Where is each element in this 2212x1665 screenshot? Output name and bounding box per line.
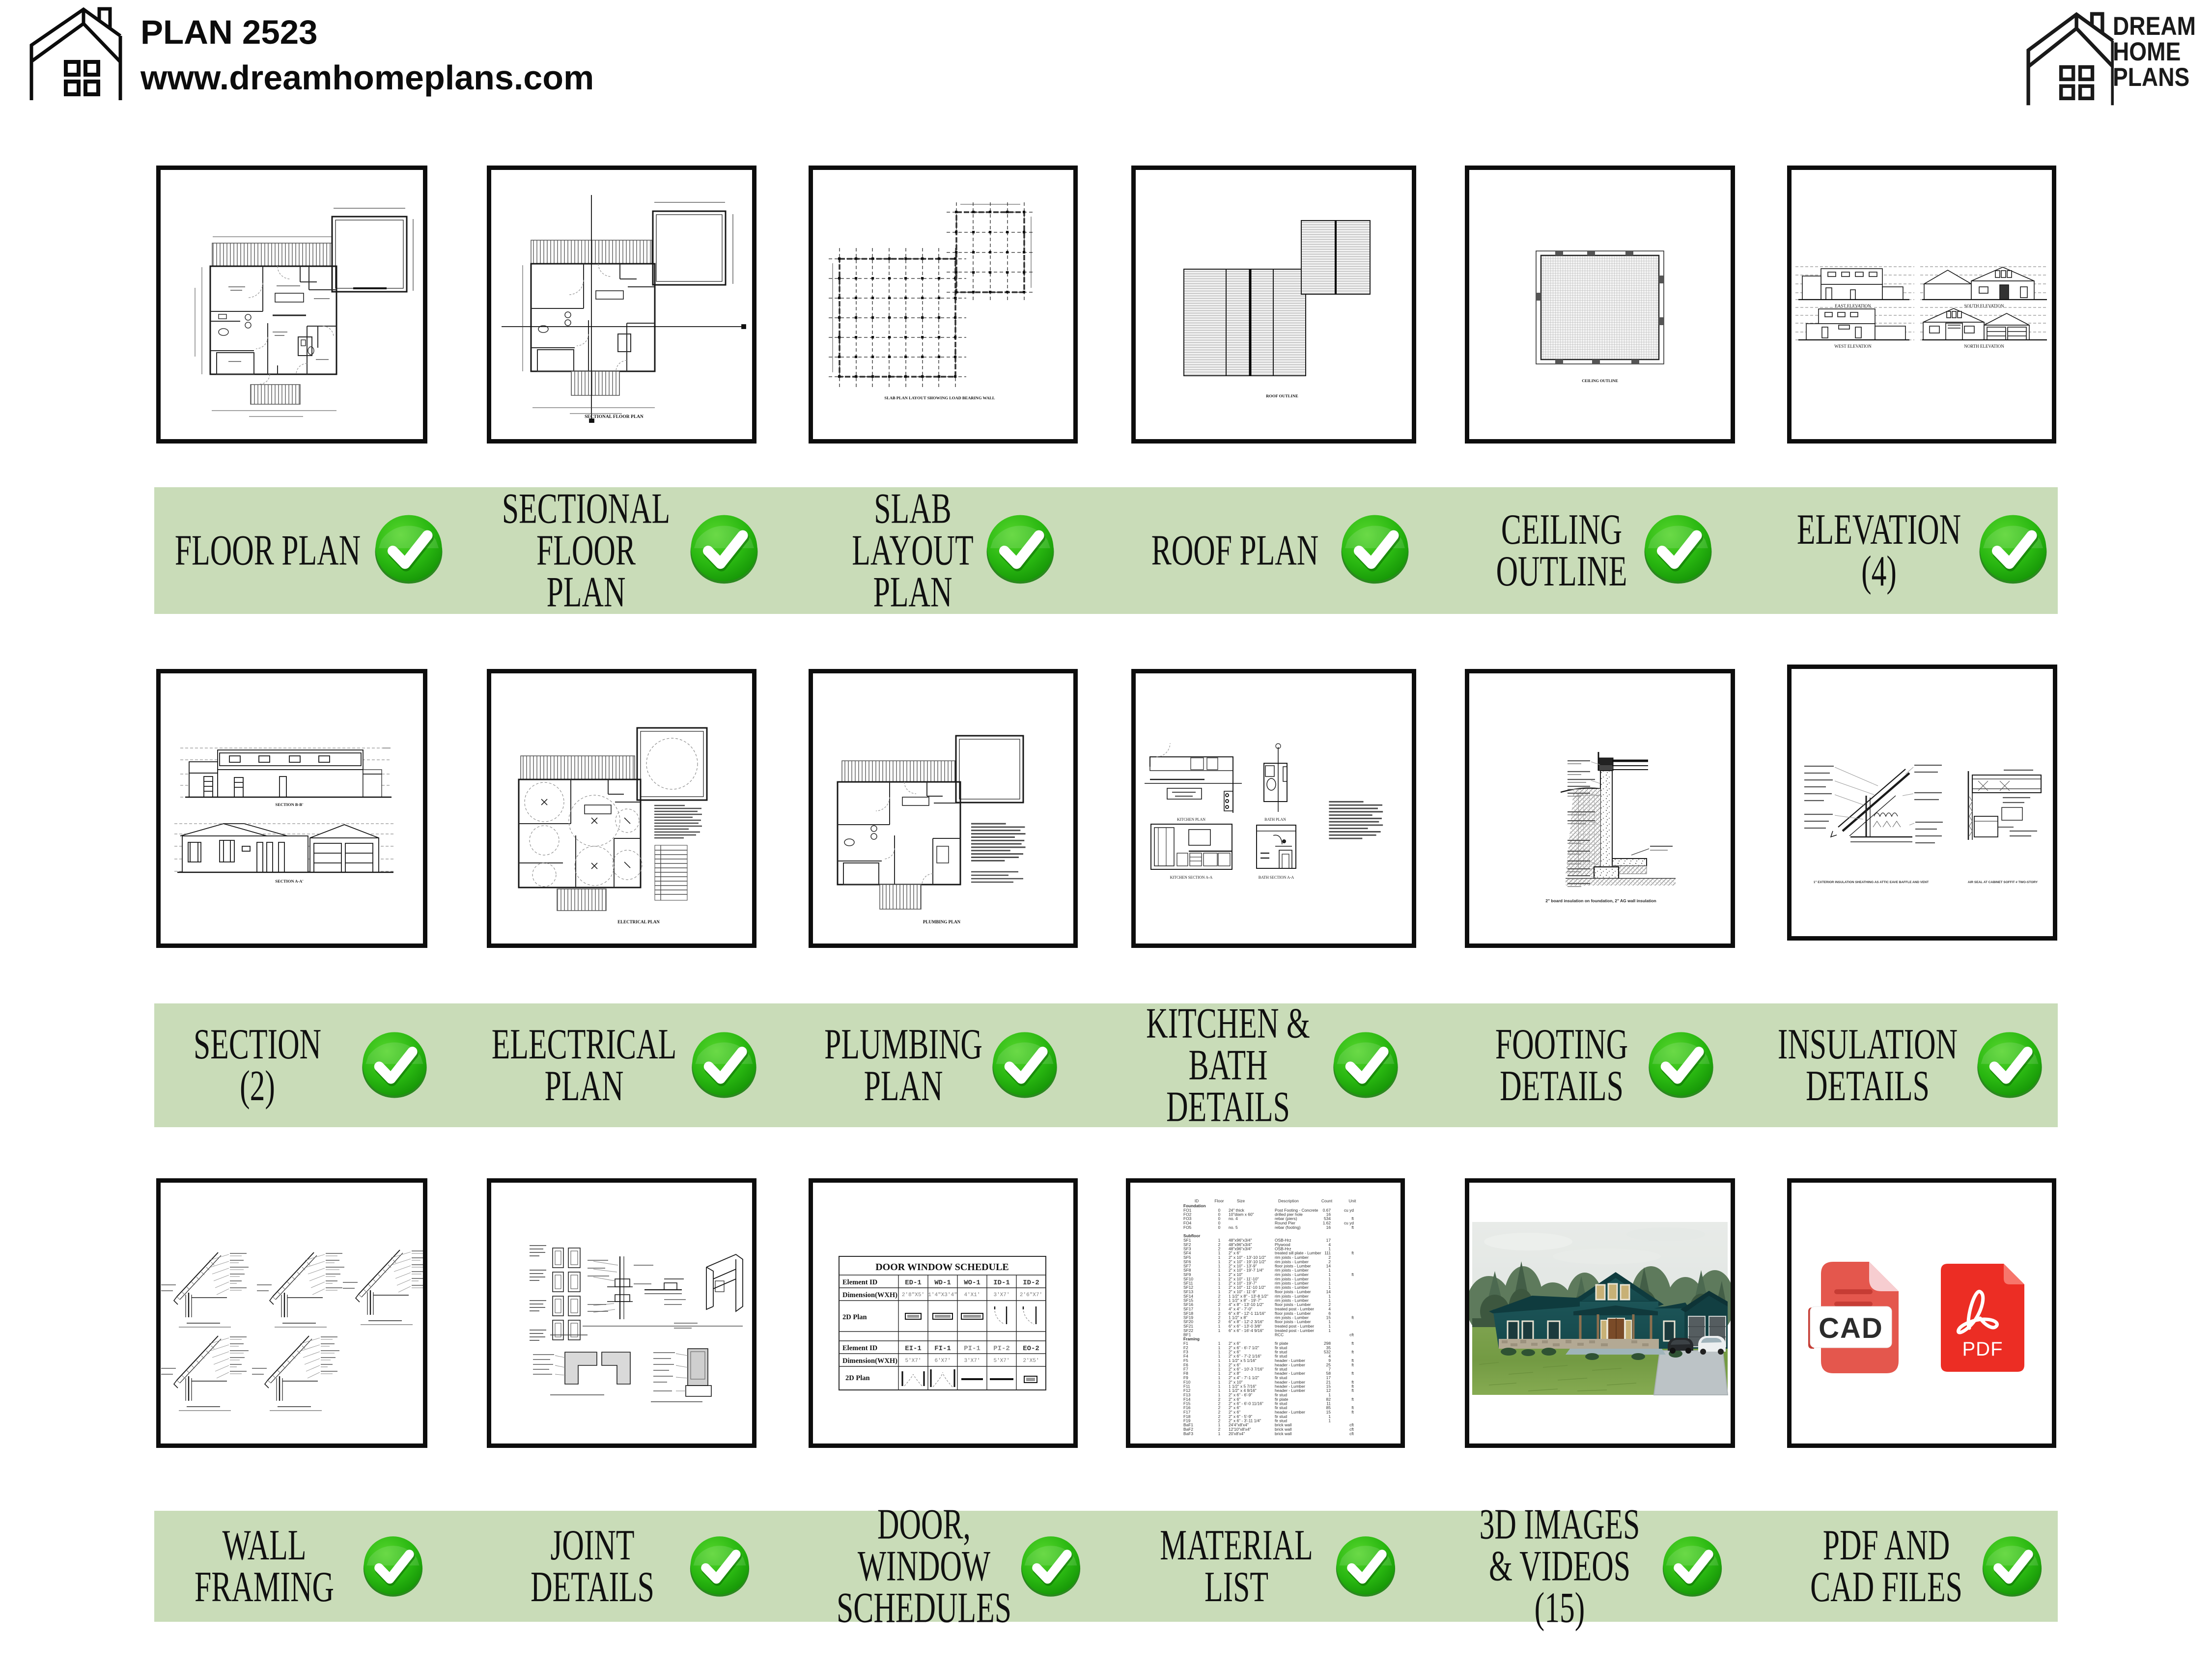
svg-text:DOOR WINDOW SCHEDULE: DOOR WINDOW SCHEDULE (875, 1262, 1009, 1273)
svg-text:Element ID: Element ID (842, 1344, 877, 1352)
svg-text:ft: ft (1351, 1397, 1354, 1402)
svg-text:ROOF OUTLINE: ROOF OUTLINE (1266, 393, 1298, 398)
svg-text:1: 1 (1218, 1328, 1221, 1333)
svg-text:6" x 6" - 16'-4 9/16": 6" x 6" - 16'-4 9/16" (1229, 1328, 1264, 1333)
svg-text:ID: ID (1195, 1198, 1199, 1203)
svg-text:1: 1 (1328, 1418, 1331, 1423)
svg-text:FI-1: FI-1 (934, 1345, 951, 1353)
svg-text:AIR SEAL AT CABINET SOFFIT # T: AIR SEAL AT CABINET SOFFIT # TWO-STORY (1968, 881, 2038, 884)
svg-text:Dimension(WXH): Dimension(WXH) (842, 1291, 897, 1299)
svg-text:PI-2: PI-2 (993, 1345, 1010, 1353)
svg-text:SECTION B-B': SECTION B-B' (276, 802, 304, 807)
svg-text:ft: ft (1351, 1341, 1354, 1346)
svg-text:BATH SECTION A-A: BATH SECTION A-A (1259, 875, 1294, 880)
svg-text:EO-2: EO-2 (1023, 1345, 1039, 1353)
svg-text:3'X7': 3'X7' (964, 1358, 980, 1364)
svg-text:cft: cft (1349, 1431, 1354, 1436)
svg-text:brick wall: brick wall (1275, 1431, 1292, 1436)
svg-text:Floor: Floor (1214, 1198, 1224, 1203)
svg-text:BATH PLAN: BATH PLAN (1264, 817, 1286, 822)
svg-text:RCC: RCC (1275, 1332, 1284, 1337)
svg-text:ft: ft (1351, 1371, 1354, 1376)
svg-text:EI-1: EI-1 (905, 1345, 922, 1353)
svg-text:2'6"X7': 2'6"X7' (1020, 1292, 1042, 1298)
svg-text:KITCHEN SECTION A-A: KITCHEN SECTION A-A (1170, 875, 1213, 880)
svg-text:ft: ft (1351, 1250, 1354, 1255)
svg-text:SLAB PLAN LAYOUT SHOWING LOAD: SLAB PLAN LAYOUT SHOWING LOAD BEARING WA… (884, 395, 995, 400)
svg-text:Element ID: Element ID (842, 1278, 877, 1286)
svg-text:SECTION A-A': SECTION A-A' (275, 879, 303, 884)
svg-text:cft: cft (1349, 1332, 1354, 1337)
svg-text:ft: ft (1351, 1272, 1354, 1277)
svg-text:cu yd: cu yd (1344, 1208, 1354, 1213)
svg-text:WEST ELEVATION: WEST ELEVATION (1834, 344, 1872, 349)
svg-text:Size: Size (1237, 1198, 1245, 1203)
svg-text:2D Plan: 2D Plan (845, 1374, 870, 1382)
svg-text:5'X7': 5'X7' (905, 1358, 921, 1364)
svg-text:Description: Description (1278, 1198, 1299, 1203)
svg-text:ft: ft (1351, 1362, 1354, 1367)
svg-text:Unit: Unit (1349, 1198, 1357, 1203)
svg-text:1" EXTERIOR INSULATION SHEATHI: 1" EXTERIOR INSULATION SHEATHING AS ATTI… (1814, 881, 1929, 884)
svg-text:ED-1: ED-1 (905, 1279, 922, 1287)
svg-text:rebar (footing): rebar (footing) (1275, 1225, 1301, 1230)
svg-text:1: 1 (1328, 1328, 1331, 1333)
svg-text:4'X1': 4'X1' (964, 1292, 980, 1298)
svg-text:20'x8'x4": 20'x8'x4" (1229, 1431, 1245, 1436)
svg-text:0: 0 (1218, 1225, 1221, 1230)
svg-text:PLUMBING PLAN: PLUMBING PLAN (923, 919, 961, 924)
svg-text:PDF: PDF (1962, 1338, 2003, 1360)
svg-text:Count: Count (1321, 1198, 1333, 1203)
svg-text:ft: ft (1351, 1350, 1354, 1355)
svg-text:no. 5: no. 5 (1229, 1225, 1238, 1230)
svg-text:NORTH ELEVATION: NORTH ELEVATION (1964, 344, 2004, 349)
svg-text:ft: ft (1351, 1225, 1354, 1230)
svg-text:2'X5': 2'X5' (1023, 1358, 1039, 1364)
svg-text:6'X7': 6'X7' (934, 1358, 951, 1364)
svg-text:ft: ft (1351, 1388, 1354, 1393)
svg-text:SECTIONAL FLOOR PLAN: SECTIONAL FLOOR PLAN (585, 415, 644, 419)
svg-text:5'X7': 5'X7' (993, 1358, 1009, 1364)
svg-text:ft: ft (1351, 1410, 1354, 1415)
svg-text:ID-2: ID-2 (1023, 1279, 1039, 1287)
svg-text:2'8"X5': 2'8"X5' (902, 1292, 924, 1298)
svg-text:WD-1: WD-1 (934, 1279, 951, 1287)
svg-text:1: 1 (1218, 1431, 1221, 1436)
svg-text:ELECTRICAL PLAN: ELECTRICAL PLAN (617, 919, 660, 924)
svg-text:1'4"X3'4": 1'4"X3'4" (928, 1292, 957, 1298)
svg-text:3'X7': 3'X7' (993, 1292, 1009, 1298)
svg-text:Dimension(WXH): Dimension(WXH) (842, 1357, 897, 1365)
svg-text:BaF3: BaF3 (1183, 1431, 1193, 1436)
svg-text:ft: ft (1351, 1315, 1354, 1320)
svg-text:CAD: CAD (1819, 1312, 1883, 1344)
svg-text:no. 4: no. 4 (1229, 1216, 1238, 1221)
svg-text:16: 16 (1326, 1225, 1331, 1230)
svg-text:WO-1: WO-1 (964, 1279, 980, 1287)
svg-text:FO5: FO5 (1183, 1225, 1192, 1230)
svg-text:CEILING OUTLINE: CEILING OUTLINE (1582, 379, 1618, 383)
svg-text:2" board insulation on foundat: 2" board insulation on foundation, 2" AG… (1545, 898, 1656, 903)
svg-text:ID-1: ID-1 (993, 1279, 1010, 1287)
svg-text:PI-1: PI-1 (964, 1345, 980, 1353)
svg-text:2D Plan: 2D Plan (842, 1313, 867, 1321)
svg-text:KITCHEN PLAN: KITCHEN PLAN (1177, 817, 1205, 822)
